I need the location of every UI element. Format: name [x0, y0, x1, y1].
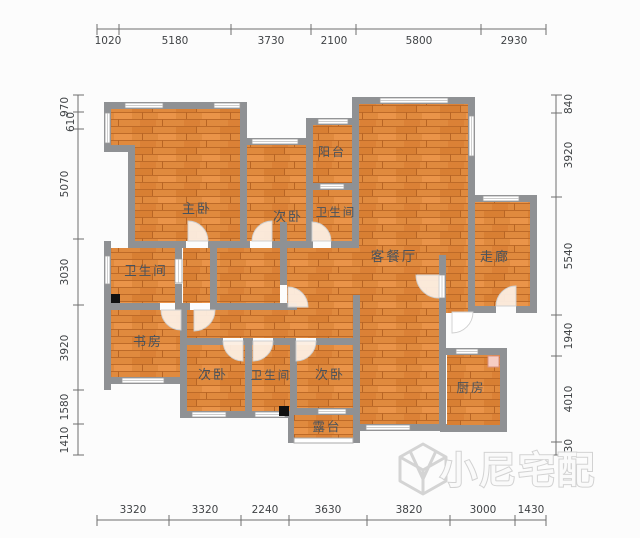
wall-segment — [530, 195, 537, 313]
dim-right-2: 5540 — [563, 243, 575, 270]
dim-left-3: 3030 — [59, 259, 71, 286]
wall-segment — [353, 295, 360, 443]
dim-right-1: 3920 — [563, 142, 575, 169]
floor-area — [359, 313, 440, 424]
dim-right-3: 1940 — [563, 323, 575, 350]
floor-area — [217, 248, 280, 303]
wall-segment — [288, 415, 294, 443]
floor-area — [135, 145, 240, 241]
room-label-corridor: 走廊 — [480, 249, 510, 265]
watermark-text: 小尼宅配 — [440, 449, 596, 492]
dim-right-0: 840 — [563, 94, 575, 114]
dim-left-2: 5070 — [59, 171, 71, 198]
room-label-master-bedroom: 主卧 — [182, 202, 212, 217]
wall-segment — [128, 145, 135, 248]
dim-top-4: 5800 — [406, 35, 433, 47]
floor-plan-svg: 主卧 次卧 阳台 卫生间 客餐厅 走廊 卫生间 书房 次卧 卫生间 次卧 厨房 … — [0, 0, 640, 538]
dim-left-1: 610 — [65, 112, 77, 132]
wall-segment — [280, 241, 312, 248]
wall-segment — [273, 338, 296, 345]
room-label-study: 书房 — [133, 334, 163, 350]
room-label-bedroom-bottom-right: 次卧 — [315, 367, 345, 383]
dim-top-3: 2100 — [321, 35, 348, 47]
floor-area — [447, 255, 468, 307]
dim-top-1: 5180 — [162, 35, 189, 47]
dim-top-2: 3730 — [258, 35, 285, 47]
dim-right-4: 4010 — [563, 386, 575, 413]
wall-segment — [240, 102, 247, 248]
dim-bottom-4: 3820 — [396, 504, 423, 516]
dim-bottom-0: 3320 — [120, 504, 147, 516]
room-label-bathroom-left: 卫生间 — [124, 263, 168, 278]
wall-segment — [440, 425, 507, 432]
room-label-bedroom-top: 次卧 — [273, 209, 303, 225]
wall-segment — [516, 306, 537, 313]
room-label-bedroom-bottom-left: 次卧 — [198, 367, 228, 383]
wall-segment — [214, 303, 297, 310]
dim-bottom-1: 3320 — [192, 504, 219, 516]
floor-plan-canvas: 主卧 次卧 阳台 卫生间 客餐厅 走廊 卫生间 书房 次卧 卫生间 次卧 厨房 … — [0, 0, 640, 538]
room-label-terrace: 露台 — [312, 419, 341, 434]
terrace-railing — [294, 438, 353, 443]
dim-bottom-6: 1430 — [518, 504, 545, 516]
room-label-bathroom-bottom: 卫生间 — [251, 368, 292, 382]
flue-block-icon — [279, 406, 289, 416]
dim-left-4: 3920 — [59, 335, 71, 362]
room-label-balcony: 阳台 — [318, 144, 346, 159]
dim-top-0: 1020 — [95, 35, 122, 47]
wall-segment — [180, 338, 223, 345]
watermark: 小尼宅配 — [400, 444, 596, 494]
door-swing-icon — [452, 312, 473, 333]
wall-segment — [272, 241, 280, 248]
dim-bottom-2: 2240 — [252, 504, 279, 516]
wall-segment — [243, 338, 253, 345]
flue-block-icon — [111, 294, 120, 303]
room-label-bathroom-top: 卫生间 — [316, 205, 357, 219]
dim-left-6: 1410 — [59, 427, 71, 454]
floor-area — [247, 145, 306, 241]
dim-bottom-3: 3630 — [315, 504, 342, 516]
dim-left-5: 1580 — [59, 394, 71, 421]
dim-top-5: 2930 — [501, 35, 528, 47]
kitchen-sink-icon — [488, 356, 499, 367]
wall-segment — [352, 97, 359, 248]
room-label-kitchen: 厨房 — [456, 380, 485, 395]
floor-area — [183, 248, 210, 303]
dim-bottom-5: 3000 — [470, 504, 497, 516]
wall-segment — [210, 241, 217, 310]
wall-segment — [104, 303, 160, 310]
wall-segment — [280, 248, 287, 285]
wall-segment — [500, 348, 507, 432]
room-label-living-dining: 客餐厅 — [371, 248, 418, 265]
